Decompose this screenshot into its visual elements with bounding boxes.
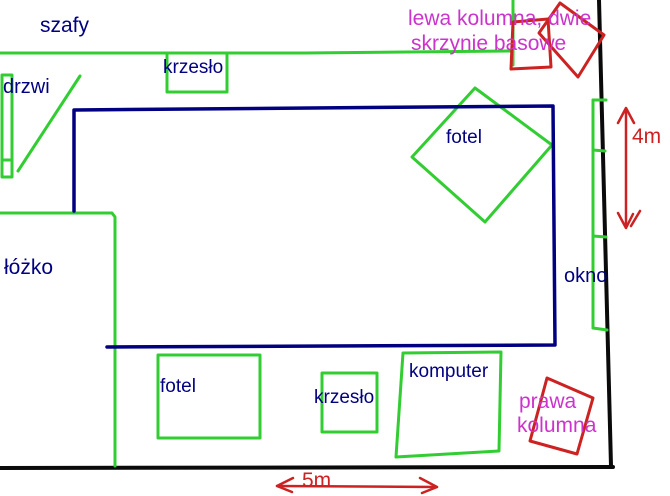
left-column-label-2: skrzynie basowe [411,33,566,55]
chair-bottom-label: krzesło [314,388,374,408]
door-label: drzwi [3,77,50,98]
width-dimension-arrow [277,478,437,493]
bed-label: łóżko [4,257,53,279]
armchair-top-label: fotel [446,128,482,148]
window-tick-mid1 [593,150,605,151]
chair-top-label: krzesło [163,58,223,78]
right-column-label-2: kolumna [517,415,596,437]
window-tick-mid2 [593,236,606,237]
room-floorplan: szafy drzwi krzesło lewa kolumna, dwie s… [0,0,670,496]
right-column-label-1: prawa [519,391,576,413]
left-column-label-1: lewa kolumna, dwie [408,8,591,30]
room-outline [74,106,555,347]
wall-bottom [0,467,613,468]
wall-right [599,0,611,466]
width-dimension-label: 5m [302,470,331,492]
wardrobes-label: szafy [40,15,89,37]
window-label: okno [564,266,607,287]
armchair-bottom-label: fotel [160,377,196,397]
height-dimension-label: 4m [632,126,661,148]
computer-label: komputer [409,362,488,382]
window-tick-bottom [593,328,607,330]
bed-outline [0,213,115,466]
